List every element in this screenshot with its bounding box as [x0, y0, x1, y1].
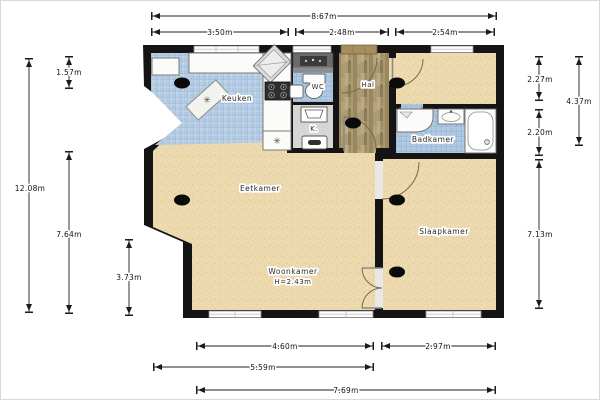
dim-top-seg3: 2.54m	[432, 28, 458, 37]
dim-left-top: 1.57m	[56, 68, 82, 77]
service-box-counter: ✳	[263, 131, 291, 150]
label-keuken: Keuken	[222, 94, 252, 103]
dim-right-top: 2.27m	[527, 75, 553, 84]
window-bottom-slaapkamer	[426, 311, 481, 318]
label-woonkamer-height: H=2.43m	[274, 278, 311, 286]
window-top-keuken	[194, 46, 259, 53]
corner-sink-icon	[397, 109, 433, 132]
floorplan-canvas: ✳ ✳	[1, 1, 600, 400]
dim-bottom-seg2: 2.97m	[425, 342, 451, 351]
dim-bottom-sub: 5.59m	[250, 363, 276, 372]
label-hal: Hal	[362, 81, 375, 89]
label-wc: WC	[312, 83, 325, 91]
point-eetkamer	[174, 195, 190, 206]
floorplan-page: ✳ ✳	[0, 0, 600, 400]
service-point-icon: ✳	[203, 96, 211, 106]
dim-left-total: 12.08m	[15, 184, 46, 193]
bathtub-icon	[465, 109, 496, 153]
dim-top-total: 8.67m	[311, 12, 337, 21]
label-badkamer: Badkamer	[412, 135, 455, 144]
point-keuken	[174, 78, 190, 89]
room-hal-floor	[339, 53, 389, 148]
dim-bottom-total: 7.69m	[333, 386, 359, 395]
dim-right-combined: 4.37m	[566, 97, 592, 106]
dim-right-mid: 2.20m	[527, 128, 553, 137]
point-hal	[345, 118, 361, 129]
point-slaapkamer-1	[389, 195, 405, 206]
label-slaapkamer: Slaapkamer	[419, 227, 469, 236]
window-bottom-woonkamer-1	[209, 311, 261, 318]
washing-machine-icon	[302, 136, 327, 149]
label-eetkamer: Eetkamer	[240, 184, 281, 193]
dim-left-mid: 7.64m	[56, 230, 82, 239]
dim-left-bottom: 3.73m	[116, 273, 142, 282]
label-woonkamer: Woonkamer	[268, 267, 318, 276]
stove-icon	[265, 82, 290, 100]
bath-sink-icon	[438, 109, 464, 124]
dim-top-seg1: 3.50m	[207, 28, 233, 37]
dim-bottom-seg1: 4.60m	[272, 342, 298, 351]
point-slaapkamer-2	[389, 267, 405, 278]
service-point-icon: ✳	[273, 137, 281, 147]
window-bottom-woonkamer-2	[319, 311, 373, 318]
fridge-icon	[152, 58, 179, 75]
kast-basin-icon	[301, 107, 327, 122]
window-top-wc	[293, 46, 331, 53]
dim-right-bottom: 7.13m	[527, 230, 553, 239]
wc-sink-icon	[290, 85, 303, 98]
label-kast: K.	[310, 125, 318, 133]
window-top-right-room	[431, 46, 473, 53]
point-room	[389, 78, 405, 89]
dim-top-seg2: 2.48m	[329, 28, 355, 37]
